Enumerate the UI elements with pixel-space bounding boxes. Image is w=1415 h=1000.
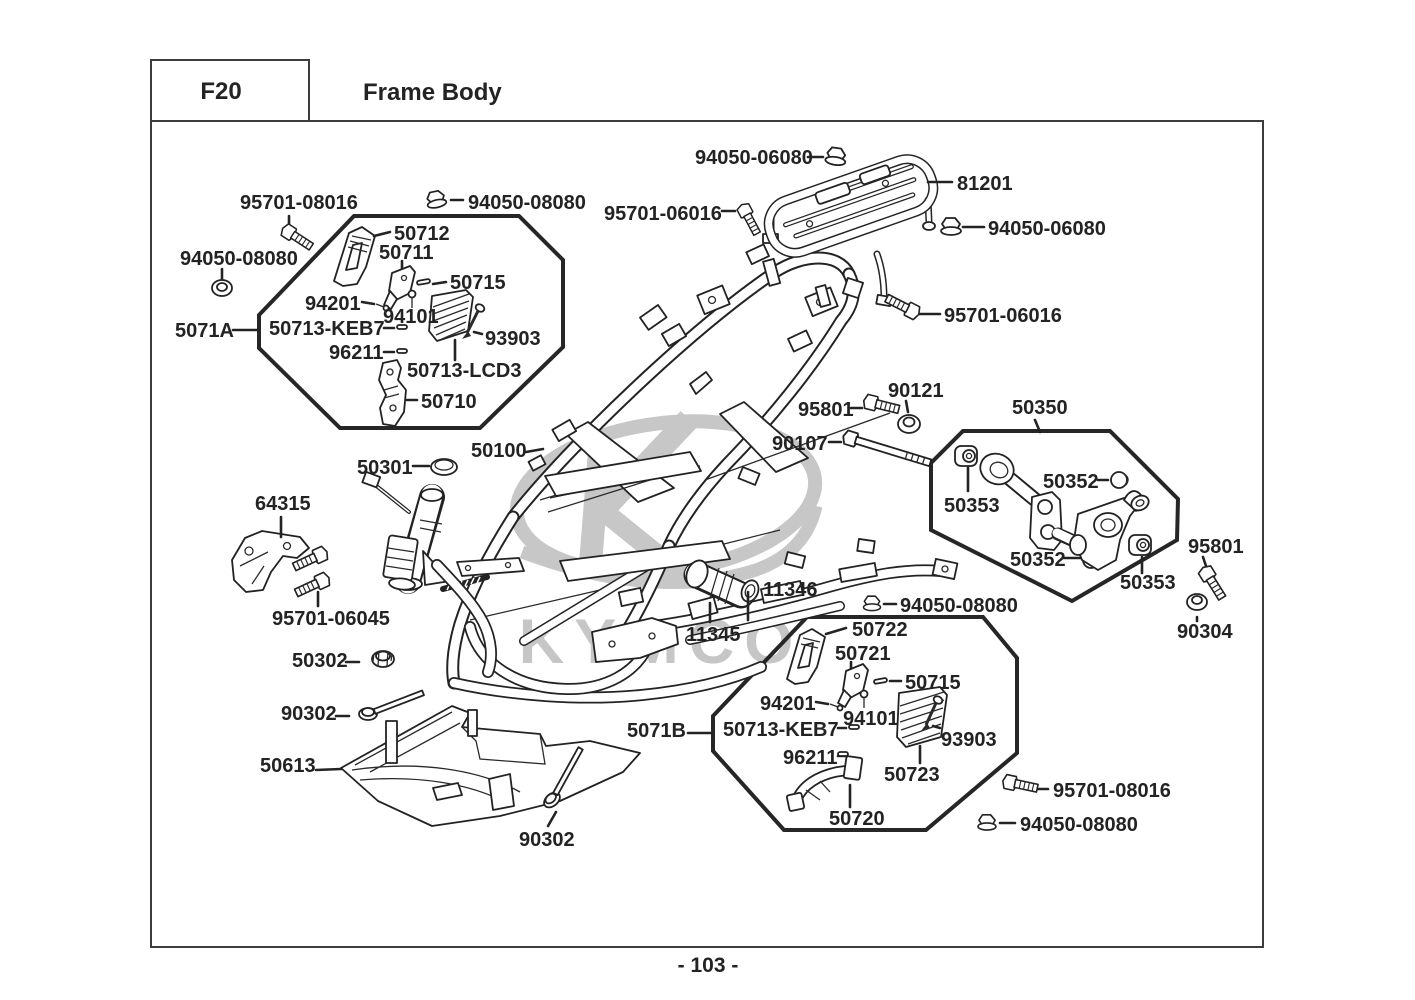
- svg-text:F20: F20: [200, 78, 241, 105]
- svg-text:94050-08080: 94050-08080: [468, 192, 586, 214]
- svg-text:50613: 50613: [260, 755, 316, 777]
- svg-text:96211: 96211: [783, 747, 838, 769]
- svg-text:50710: 50710: [421, 391, 477, 413]
- svg-text:11345: 11345: [686, 624, 741, 646]
- svg-text:64315: 64315: [255, 493, 311, 515]
- svg-text:90107: 90107: [772, 433, 828, 455]
- svg-text:50722: 50722: [852, 619, 908, 641]
- svg-text:94050-08080: 94050-08080: [900, 595, 1018, 617]
- svg-text:95701-06045: 95701-06045: [272, 608, 390, 630]
- svg-text:50711: 50711: [379, 242, 434, 264]
- svg-text:50713-KEB7: 50713-KEB7: [723, 719, 839, 741]
- svg-text:50350: 50350: [1012, 397, 1068, 419]
- svg-text:50713-KEB7: 50713-KEB7: [269, 318, 385, 340]
- svg-text:Frame Body: Frame Body: [363, 79, 502, 106]
- svg-text:5071A: 5071A: [175, 320, 234, 342]
- svg-text:94050-08080: 94050-08080: [180, 248, 298, 270]
- svg-text:93903: 93903: [941, 729, 997, 751]
- svg-text:95801: 95801: [798, 399, 854, 421]
- svg-text:90121: 90121: [888, 380, 944, 402]
- svg-text:94101: 94101: [383, 306, 439, 328]
- svg-text:90304: 90304: [1177, 621, 1233, 643]
- svg-text:50352: 50352: [1043, 471, 1099, 493]
- svg-text:90302: 90302: [519, 829, 575, 851]
- svg-text:50721: 50721: [835, 643, 891, 665]
- svg-text:95801: 95801: [1188, 536, 1244, 558]
- svg-text:95701-08016: 95701-08016: [240, 192, 358, 214]
- svg-text:81201: 81201: [957, 173, 1013, 195]
- svg-text:50723: 50723: [884, 764, 940, 786]
- svg-text:95701-06016: 95701-06016: [604, 203, 722, 225]
- svg-text:96211: 96211: [329, 342, 384, 364]
- svg-text:50713-LCD3: 50713-LCD3: [407, 360, 522, 382]
- svg-text:94050-08080: 94050-08080: [1020, 814, 1138, 836]
- svg-text:50720: 50720: [829, 808, 885, 830]
- svg-text:- 103 -: - 103 -: [678, 954, 739, 977]
- svg-text:95701-06016: 95701-06016: [944, 305, 1062, 327]
- svg-text:50302: 50302: [292, 650, 348, 672]
- svg-text:11346: 11346: [763, 579, 818, 601]
- svg-text:93903: 93903: [485, 328, 541, 350]
- svg-text:95701-08016: 95701-08016: [1053, 780, 1171, 802]
- svg-text:50353: 50353: [944, 495, 1000, 517]
- svg-text:50353: 50353: [1120, 572, 1176, 594]
- svg-text:94201: 94201: [760, 693, 816, 715]
- svg-text:5071B: 5071B: [627, 720, 686, 742]
- svg-text:94201: 94201: [305, 293, 361, 315]
- svg-text:94050-06080: 94050-06080: [695, 147, 813, 169]
- svg-text:50100: 50100: [471, 440, 527, 462]
- svg-text:90302: 90302: [281, 703, 337, 725]
- svg-text:50352: 50352: [1010, 549, 1066, 571]
- svg-text:50301: 50301: [357, 457, 413, 479]
- svg-text:94050-06080: 94050-06080: [988, 218, 1106, 240]
